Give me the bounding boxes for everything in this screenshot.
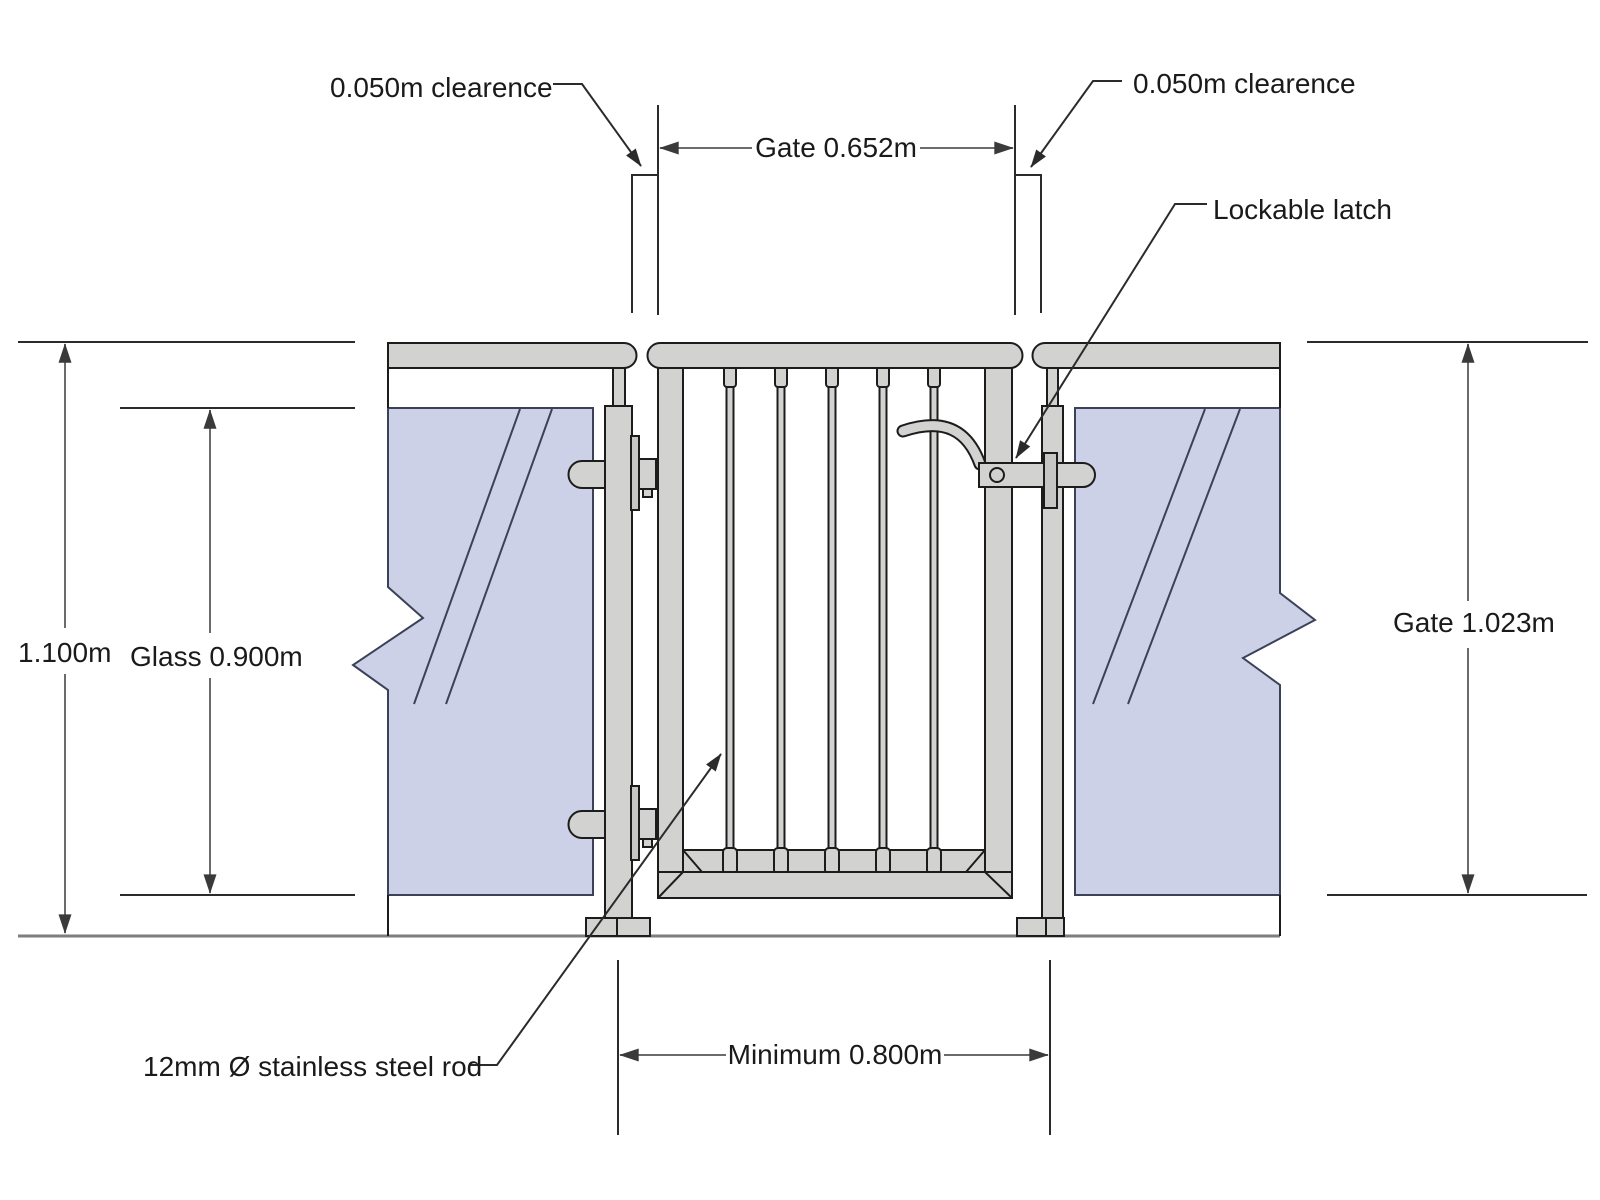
gate-elevation-drawing: 0.050m clearence 0.050m clearence Gate 0… [0,0,1600,1200]
gate-bottom-rail-front [658,872,1012,898]
glass-panel-right [1075,408,1315,895]
latch-keeper [1044,453,1057,508]
label-overall-height: 1.100m [18,637,111,668]
gate-rods [723,365,941,874]
label-lockable-latch: Lockable latch [1213,194,1392,225]
label-rod-note: 12mm Ø stainless steel rod [143,1051,482,1082]
glass-panel-left [353,408,593,895]
label-clearance-left: 0.050m clearence [330,72,553,103]
latch-pivot [990,468,1004,482]
hinge-post [605,406,632,920]
clearance-gap-right [1015,175,1041,313]
rod-ferrule-bottom [876,848,890,874]
rod-shaft [727,387,734,850]
rod-ferrule-bottom [723,848,737,874]
gate-top-rail [648,343,1023,368]
rail-spigot [613,368,625,406]
clearance-gap-left [632,175,658,313]
rod-shaft [880,387,887,850]
hinge-block [639,809,656,839]
rod-shaft [931,387,938,850]
drawing-canvas: 0.050m clearence 0.050m clearence Gate 0… [0,0,1600,1200]
base-plate [1017,918,1064,936]
gate-stile-left [658,358,683,872]
hinge-barrel [569,811,606,838]
leader-clearance-left [553,84,641,166]
left-fence-section [353,343,656,936]
rod [723,365,737,874]
label-min-opening: Minimum 0.800m [728,1039,943,1070]
hinge-plate [631,786,639,860]
hinge-pin [643,839,652,847]
hinge-block [639,459,656,489]
right-fence-section [1017,343,1315,936]
rod-shaft [829,387,836,850]
rod-ferrule-bottom [774,848,788,874]
rod-shaft [778,387,785,850]
rod-ferrule-bottom [927,848,941,874]
rod [876,365,890,874]
gate [648,343,1096,898]
dimensions [18,81,1588,1135]
handrail-right [1033,343,1281,368]
label-clearance-right: 0.050m clearence [1133,68,1356,99]
label-gate-width: Gate 0.652m [755,132,917,163]
hinge-barrel [569,461,606,488]
label-glass-height: Glass 0.900m [130,641,303,672]
gate-stile-right [985,358,1012,872]
rod-ferrule-bottom [825,848,839,874]
rod [774,365,788,874]
hinge-pin [643,489,652,497]
rod [825,365,839,874]
label-gate-height: Gate 1.023m [1393,607,1555,638]
leader-clearance-right [1031,81,1122,167]
hinge-plate [631,436,639,510]
rod [927,365,941,874]
handrail-left [388,343,637,368]
